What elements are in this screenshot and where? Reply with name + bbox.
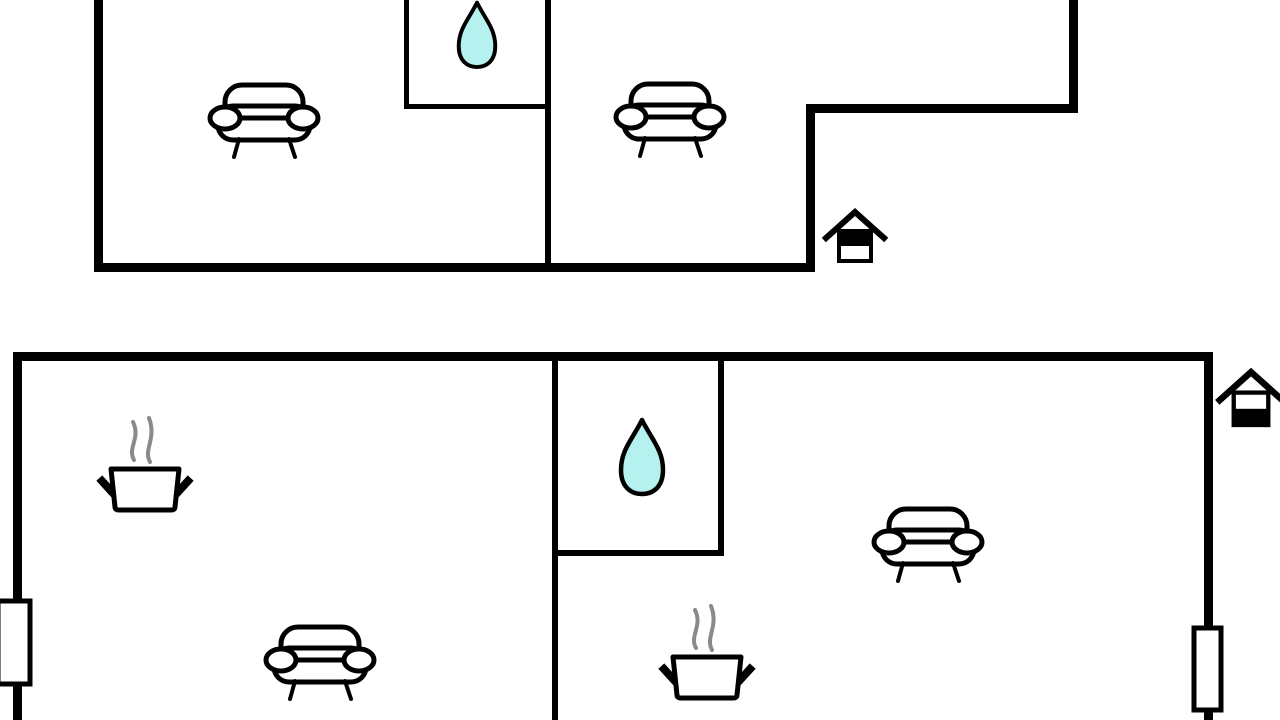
wall-bathroom-bottom: [404, 104, 551, 109]
entrance-house-icon: [826, 212, 884, 261]
cooking-pot-icon: [664, 606, 750, 698]
wall-bathroom-right: [718, 361, 724, 556]
wall-step-horizontal: [806, 104, 1078, 113]
floor-plans-svg: [0, 0, 1280, 720]
wall-room-divider: [552, 361, 558, 720]
water-drop-icon: [459, 3, 496, 67]
wall-right-wall: [1069, 0, 1078, 113]
wall-bathroom-left: [404, 0, 409, 109]
window-marker-right-window: [1194, 628, 1221, 710]
wall-top-wall: [13, 352, 1213, 361]
wall-bathroom-bottom: [552, 550, 724, 556]
water-drop-icon: [621, 420, 663, 494]
wall-step-vertical: [806, 104, 815, 272]
cooking-pot-icon: [102, 418, 188, 510]
lower-floor-plan: [0, 352, 1280, 720]
sofa-icon: [266, 627, 374, 699]
wall-room-divider: [545, 0, 551, 263]
window-marker-left-window: [0, 601, 30, 684]
floorplan-canvas: [0, 0, 1280, 720]
sofa-icon: [616, 84, 724, 156]
wall-left-wall: [94, 0, 103, 272]
wall-bottom-wall: [94, 263, 815, 272]
sofa-icon: [210, 85, 318, 157]
sofa-icon: [874, 509, 982, 581]
entrance-house-icon: [1220, 372, 1280, 426]
upper-floor-plan: [94, 0, 1078, 272]
